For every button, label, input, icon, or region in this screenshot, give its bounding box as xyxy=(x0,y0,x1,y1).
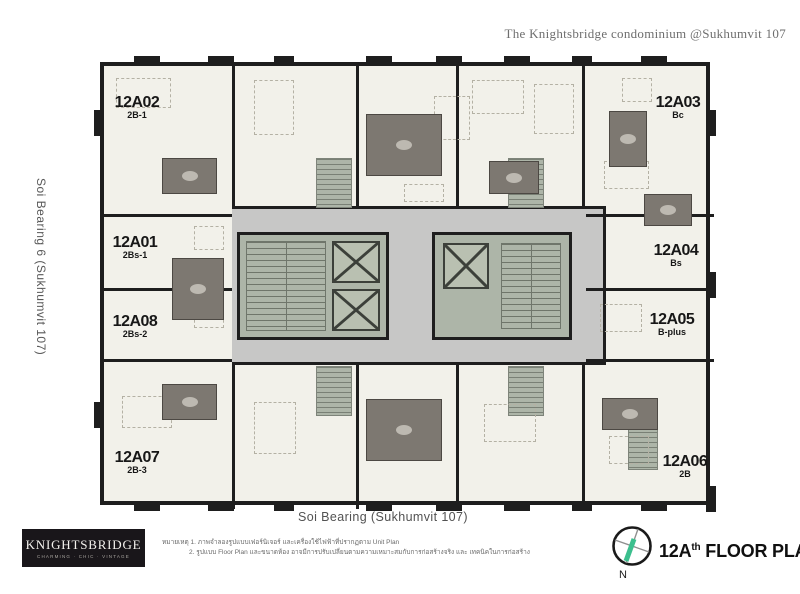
stair-block xyxy=(316,366,352,416)
brand-logo: KNIGHTSBRIDGE CHARMING · CHIC · VINTAGE xyxy=(22,529,145,567)
unit-code: 12A06 xyxy=(663,454,708,469)
balcony-ledge xyxy=(706,486,716,512)
balcony-ledge xyxy=(504,501,530,511)
bathroom-block xyxy=(644,194,692,226)
balcony-ledge xyxy=(134,501,160,511)
bath-fixture xyxy=(182,397,198,407)
balcony-ledge xyxy=(208,501,234,511)
unit-type: B-plus xyxy=(650,327,695,338)
wall-segment xyxy=(356,66,359,209)
bathroom-block xyxy=(609,111,647,167)
unit-code: 12A04 xyxy=(654,243,699,258)
wall-segment xyxy=(104,359,232,362)
wall-segment xyxy=(232,362,235,509)
balcony-ledge xyxy=(572,56,592,66)
bathroom-block xyxy=(366,399,442,461)
bath-fixture xyxy=(396,140,412,150)
floor-plan-title: 12Ath FLOOR PLAN xyxy=(659,541,800,562)
bathroom-block xyxy=(162,384,217,420)
bath-fixture xyxy=(622,409,638,419)
furniture-outline xyxy=(600,304,642,332)
bathroom-block xyxy=(172,258,224,320)
balcony-ledge xyxy=(436,501,462,511)
furniture-outline xyxy=(622,78,652,102)
core-right xyxy=(432,232,572,340)
bathroom-block xyxy=(366,114,442,176)
unit-code: 12A05 xyxy=(650,312,695,327)
balcony-ledge xyxy=(208,56,234,66)
brand-name: KNIGHTSBRIDGE xyxy=(26,537,142,553)
elevator-icon xyxy=(332,289,380,331)
unit-code: 12A03 xyxy=(656,95,701,110)
furniture-outline xyxy=(254,402,296,454)
compass-north-label: N xyxy=(619,569,627,580)
stair-block xyxy=(316,158,352,208)
road-label-left: Soi Bearing 6 (Sukhumvit 107) xyxy=(34,178,48,428)
compass-icon: N xyxy=(608,522,656,580)
balcony-ledge xyxy=(641,56,667,66)
wall-segment xyxy=(104,214,232,217)
furniture-outline xyxy=(484,404,536,442)
floor-plan: 12A02 2B-1 12A01 2Bs-1 12A08 2Bs-2 12A07… xyxy=(100,62,710,505)
furniture-outline xyxy=(472,80,524,114)
unit-code: 12A02 xyxy=(115,95,160,110)
bath-fixture xyxy=(190,284,206,294)
balcony-ledge xyxy=(94,110,104,136)
unit-type: Bs xyxy=(654,258,699,269)
unit-label-12a04: 12A04 Bs xyxy=(654,243,699,269)
note-line-1: หมายเหตุ 1. ภาพจำลองรูปแบบเฟอร์นิเจอร์ แ… xyxy=(162,538,592,548)
wall-segment xyxy=(603,209,606,365)
note-line-2: 2. รูปแบบ Floor Plan และขนาดห้อง อาจมีกา… xyxy=(162,548,592,558)
unit-label-12a07: 12A07 2B-3 xyxy=(115,450,160,476)
wall-segment xyxy=(582,362,585,509)
bathroom-block xyxy=(602,398,658,430)
unit-type: 2Bs-1 xyxy=(113,250,158,261)
balcony-ledge xyxy=(366,501,392,511)
header-title: The Knightsbridge condominium @Sukhumvit… xyxy=(504,26,786,42)
balcony-ledge xyxy=(436,56,462,66)
unit-code: 12A07 xyxy=(115,450,160,465)
disclaimer-notes: หมายเหตุ 1. ภาพจำลองรูปแบบเฟอร์นิเจอร์ แ… xyxy=(162,538,592,558)
unit-type: 2B xyxy=(663,469,708,480)
wall-segment xyxy=(232,206,606,209)
balcony-ledge xyxy=(274,501,294,511)
bath-fixture xyxy=(506,173,522,183)
unit-label-12a02: 12A02 2B-1 xyxy=(115,95,160,121)
stairs-icon xyxy=(246,241,326,331)
wall-segment xyxy=(456,362,459,509)
furniture-outline xyxy=(404,184,444,202)
balcony-ledge xyxy=(641,501,667,511)
bath-fixture xyxy=(182,171,198,181)
balcony-ledge xyxy=(366,56,392,66)
unit-type: 2B-1 xyxy=(115,110,160,121)
balcony-ledge xyxy=(94,402,104,428)
road-label-bottom: Soi Bearing (Sukhumvit 107) xyxy=(278,510,488,524)
balcony-ledge xyxy=(274,56,294,66)
elevator-icon xyxy=(332,241,380,283)
balcony-ledge xyxy=(706,272,716,298)
bath-fixture xyxy=(620,134,636,144)
furniture-outline xyxy=(194,226,224,250)
bathroom-block xyxy=(162,158,217,194)
balcony-ledge xyxy=(504,56,530,66)
elevator-bank xyxy=(332,235,386,337)
unit-label-12a05: 12A05 B-plus xyxy=(650,312,695,338)
balcony-ledge xyxy=(572,501,592,511)
page: The Knightsbridge condominium @Sukhumvit… xyxy=(0,0,800,594)
elevator-icon xyxy=(443,243,489,289)
unit-code: 12A08 xyxy=(113,314,158,329)
unit-label-12a03: 12A03 Bc xyxy=(656,95,701,121)
unit-label-12a08: 12A08 2Bs-2 xyxy=(113,314,158,340)
wall-segment xyxy=(356,362,359,509)
bath-fixture xyxy=(396,425,412,435)
wall-segment xyxy=(582,66,585,209)
bath-fixture xyxy=(660,205,676,215)
wall-segment xyxy=(232,66,235,209)
furniture-outline xyxy=(609,436,649,464)
unit-label-12a01: 12A01 2Bs-1 xyxy=(113,235,158,261)
stairs-icon xyxy=(501,243,561,329)
furniture-outline xyxy=(254,80,294,135)
core-left xyxy=(237,232,389,340)
unit-type: 2Bs-2 xyxy=(113,329,158,340)
unit-type: Bc xyxy=(656,110,701,121)
bathroom-block xyxy=(489,161,539,194)
brand-tagline: CHARMING · CHIC · VINTAGE xyxy=(37,554,130,559)
unit-type: 2B-3 xyxy=(115,465,160,476)
plan-title-block: N 12Ath FLOOR PLAN xyxy=(608,522,800,580)
balcony-ledge xyxy=(134,56,160,66)
unit-label-12a06: 12A06 2B xyxy=(663,454,708,480)
unit-code: 12A01 xyxy=(113,235,158,250)
furniture-outline xyxy=(534,84,574,134)
wall-segment xyxy=(232,362,606,365)
balcony-ledge xyxy=(706,110,716,136)
